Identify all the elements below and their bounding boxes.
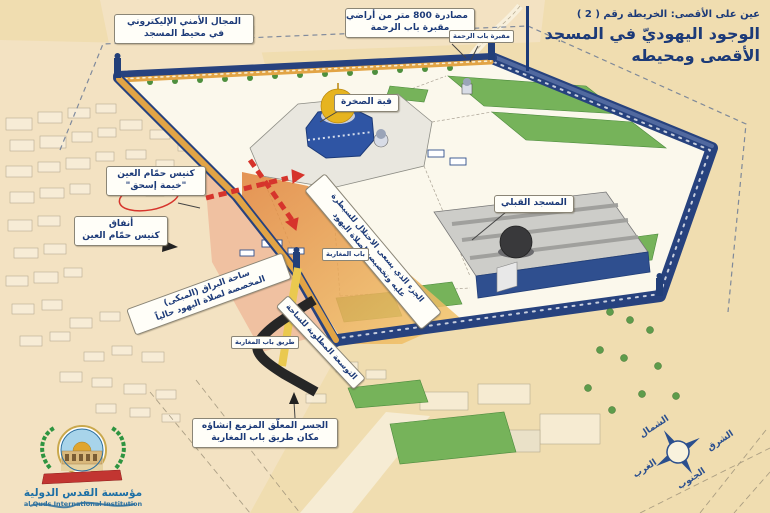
callout-suspended-bridge: الجسر المعلّق المزمع إنشاؤه مكان طريق با… <box>192 418 338 448</box>
laurel-right <box>112 428 124 468</box>
dome-of-chain-top <box>376 129 386 139</box>
callout-synagogue-tunnels: أنفاق كنيس حمّام العين <box>74 216 168 246</box>
map-title-line1: الوجود اليهوديّ في المسجد <box>545 23 760 45</box>
org-name-english: al Quds International Institution <box>16 500 150 508</box>
callout-hammam-alayn-synagogue: كنيس حمّام العين "خيمة إسحق" <box>106 166 206 196</box>
map-title-line2: الأقصى ومحيطه <box>545 45 760 67</box>
label-maghariba-gate: باب المغاربة <box>322 248 369 261</box>
golden-gate-dome <box>463 78 471 86</box>
laurel-left <box>42 428 54 468</box>
map-series-title: عين على الأقصى: الخريطة رقم ( 2 ) <box>545 9 760 20</box>
map-title-block: عين على الأقصى: الخريطة رقم ( 2 ) الوجود… <box>526 6 764 71</box>
callout-security-zone: المجال الأمني الإليكتروني في محيط المسجد <box>114 14 254 44</box>
qibli-black-dome <box>500 226 532 258</box>
label-qibli-mosque: المسجد القبلي <box>494 195 574 213</box>
aqsa-map-infographic: عين على الأقصى: الخريطة رقم ( 2 ) الوجود… <box>0 0 770 513</box>
emblem-ribbon <box>42 470 122 484</box>
label-bab-rahma-cemetery: مقبرة باب الرحمة <box>449 30 514 43</box>
org-name-arabic: مؤسسة القدس الدولية <box>16 487 150 499</box>
organization-logo <box>28 424 138 488</box>
emblem-scene <box>61 429 103 471</box>
label-maghariba-road: طريق باب المغاربة <box>231 336 299 349</box>
label-dome-of-the-rock: قبة الصخرة <box>334 94 399 112</box>
